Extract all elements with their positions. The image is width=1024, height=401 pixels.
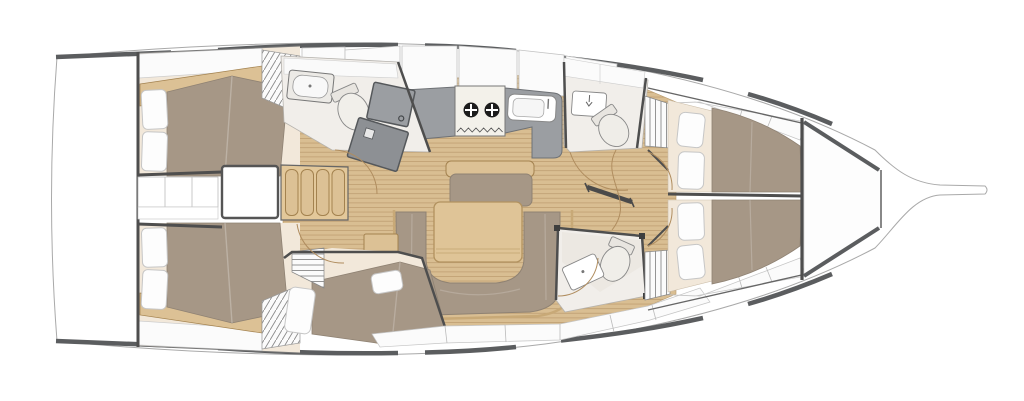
vberth-starboard-pillow-2: [677, 203, 704, 241]
aft-cabin-starboard-pillow-1: [141, 269, 168, 309]
mid-cabin-pillow-1: [284, 286, 316, 334]
vberth-centerline-bulkhead: [668, 194, 802, 196]
aft-cabin-starboard-pillow-2: [141, 228, 167, 268]
engine-box: [138, 177, 218, 207]
hanging-locker-bottom-hatch: [645, 250, 670, 300]
stair-tread-3: [317, 170, 330, 216]
stove-burner-icon-2: [485, 103, 500, 118]
overhead-locker-2: [402, 46, 457, 90]
stair-tread-2: [301, 170, 314, 216]
stair-tread-4: [332, 170, 345, 216]
vberth-port-pillow-1: [676, 112, 705, 149]
galley-sink-basin: [513, 98, 545, 118]
floor-plan-canvas: [0, 0, 1024, 401]
yacht-floor-plan: [0, 0, 1024, 401]
engine-shelf: [138, 207, 218, 219]
galley-sink: [507, 94, 556, 122]
engine-compartment: [138, 177, 218, 219]
aft-cabin-port: [138, 46, 300, 176]
companionway-landing: [222, 166, 278, 218]
aft-head-sink: [287, 70, 335, 104]
galley-faucet-icon: [548, 99, 549, 109]
stair-tread-1: [286, 170, 299, 216]
forward-head: [564, 58, 648, 152]
overhead-locker-4: [519, 50, 564, 96]
companionway: [222, 165, 348, 220]
aft-cabin-port-pillow-1: [141, 89, 168, 129]
aft-cabin-port-pillow-2: [141, 132, 167, 172]
stove-burner-icon-1: [464, 103, 479, 118]
salon-bench-cushion: [450, 174, 532, 206]
vberth-starboard-pillow-1: [676, 244, 705, 281]
overhead-locker-3: [459, 46, 517, 92]
vberth-port-pillow-2: [677, 152, 704, 190]
hanging-locker-top-hatch: [645, 96, 670, 148]
